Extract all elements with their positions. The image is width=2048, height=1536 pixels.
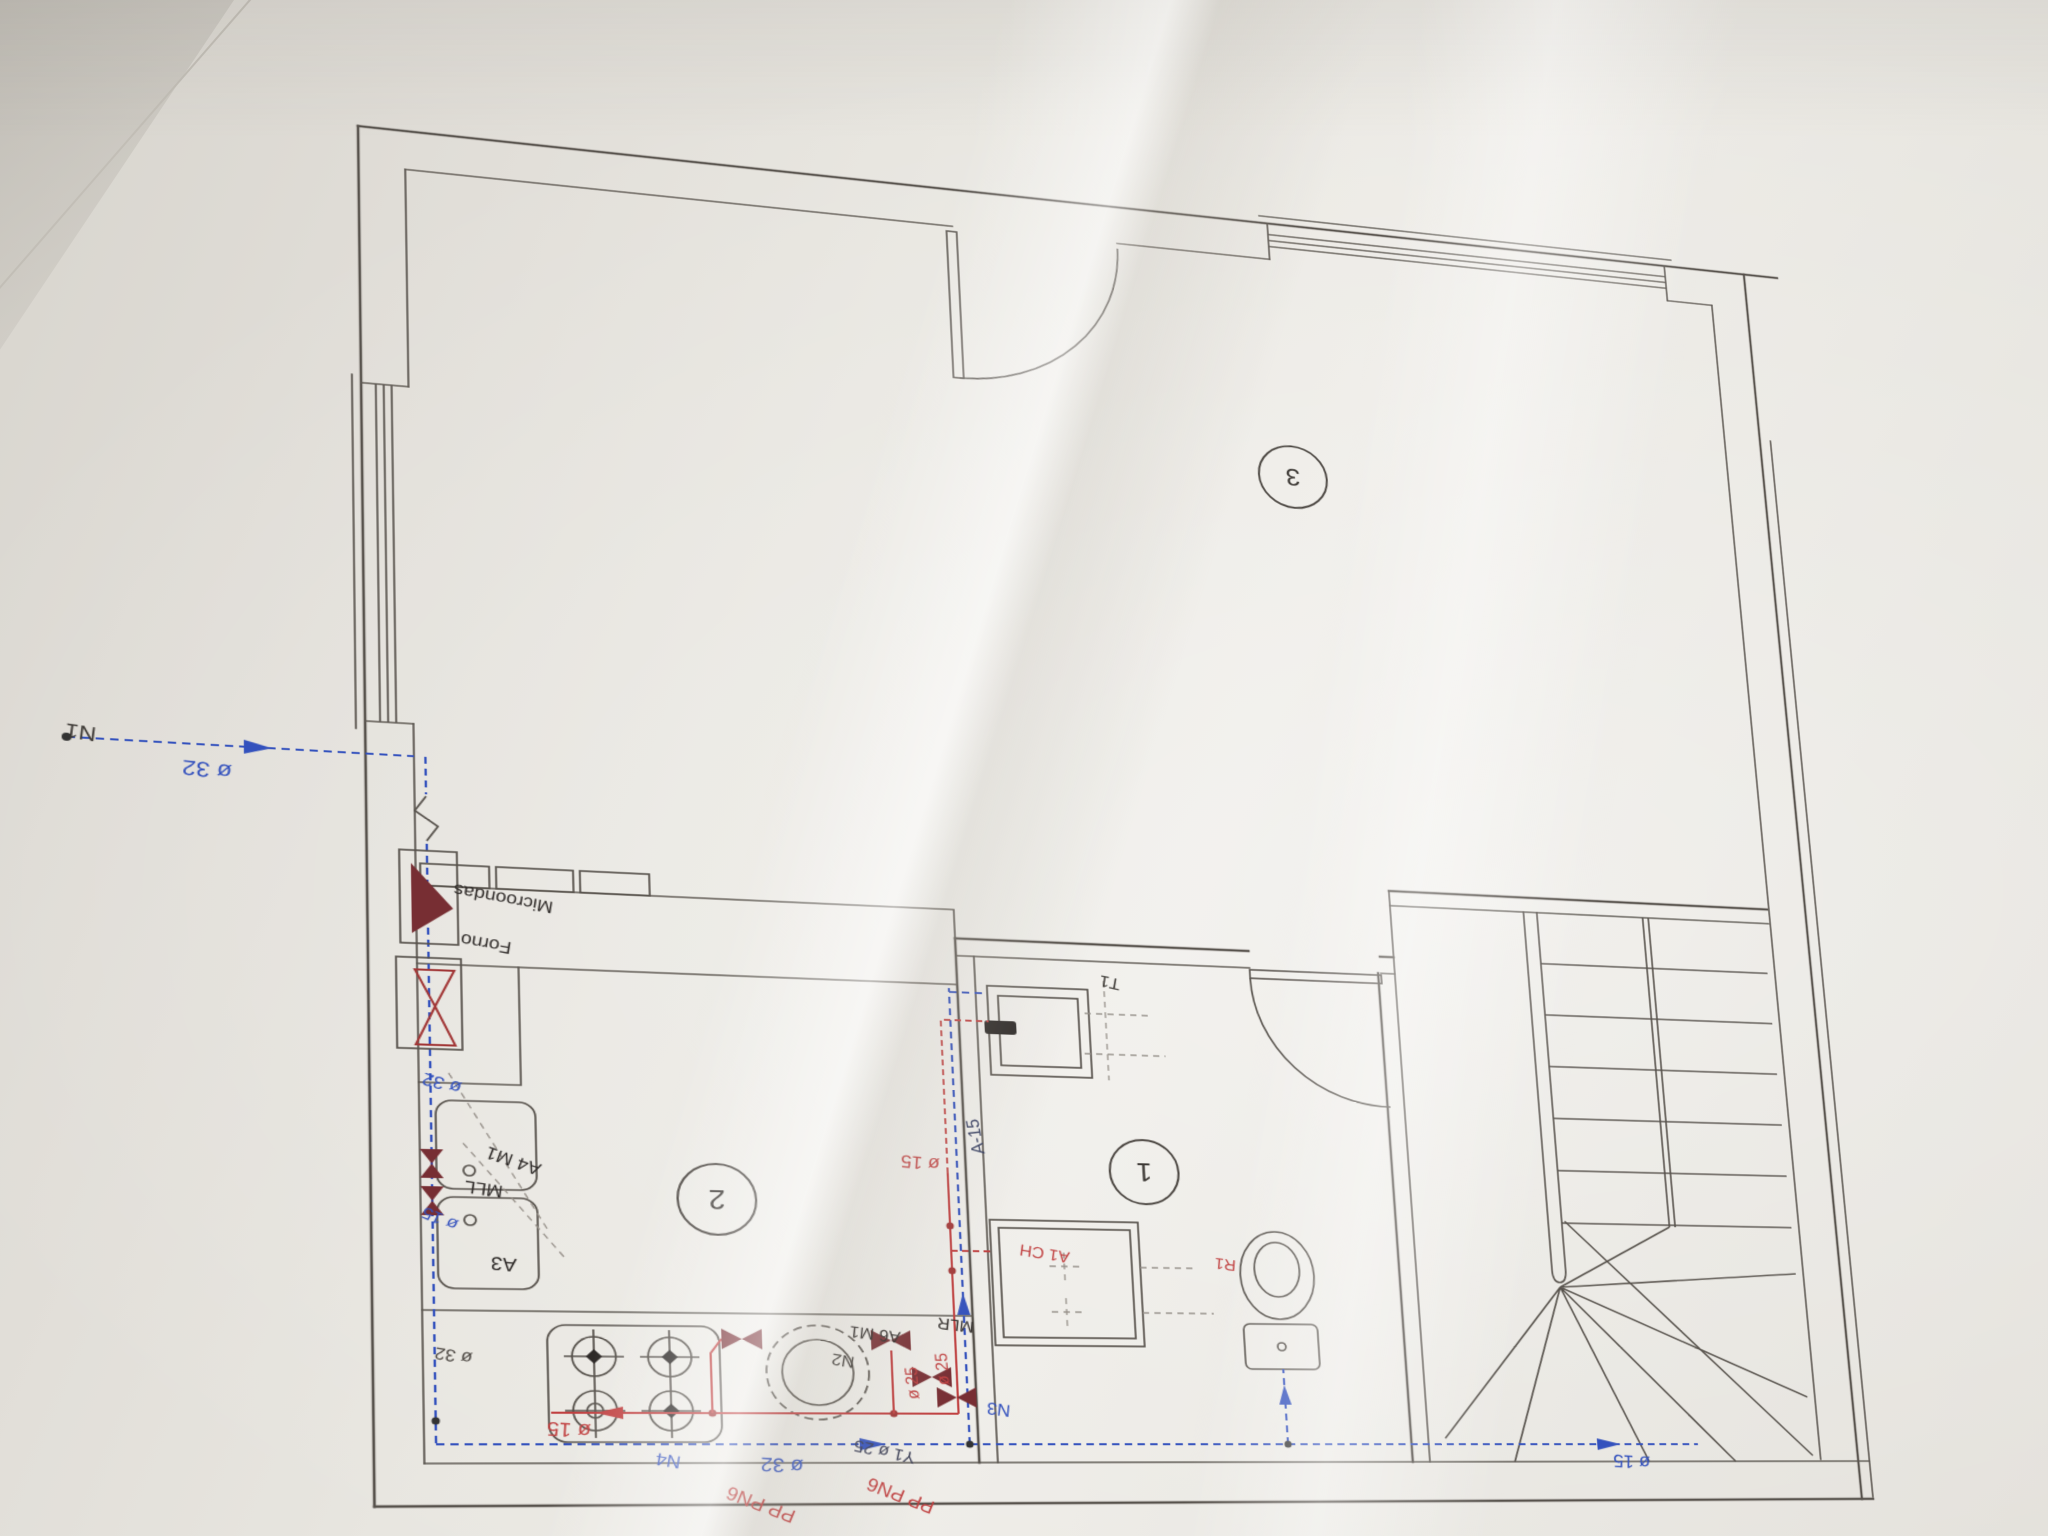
annotations: N1 ø 32 ø 32 ø 32 Microondas Forno A4 M1…	[59, 718, 1656, 1532]
floor-plan-sheet: 1 2 3 N1 ø 32 ø 32 ø 32 Microondas Forno…	[0, 52, 1920, 1536]
label-appliance: MLR	[937, 1314, 975, 1337]
label-fixture: A3	[490, 1253, 517, 1276]
outer-walls	[349, 118, 1897, 1507]
room-number-1: 1	[1136, 1158, 1153, 1187]
room-circles	[654, 390, 1381, 1246]
valve-icon	[420, 1149, 444, 1164]
label-pipe-dia: ø 32	[760, 1452, 804, 1477]
label-node-n1: N1	[64, 718, 98, 744]
label-fixture: A6 M1	[849, 1322, 901, 1347]
label-node-n4: N4	[654, 1449, 682, 1473]
flow-arrow-icon	[956, 1293, 970, 1315]
check-valve-icon	[411, 863, 454, 935]
valve-icon	[420, 1163, 444, 1178]
label-fixture: R1	[1214, 1254, 1236, 1274]
label-pipe-spec: PP PN6	[863, 1474, 937, 1519]
room-number-2: 2	[708, 1184, 726, 1214]
bathroom-door	[1250, 970, 1391, 1107]
label-pipe-dia: ø 15	[900, 1151, 940, 1175]
label-pipe-dia: ø 25	[901, 1367, 924, 1400]
label-pipe-dia: ø 15	[546, 1417, 591, 1442]
burner-icon	[639, 1330, 700, 1384]
label-pipe-dia: ø 15	[1613, 1450, 1650, 1473]
water-heater-t1	[982, 976, 1167, 1082]
label-node-n3: N3	[986, 1398, 1012, 1420]
heater-handle-icon	[984, 1020, 1016, 1035]
label-pipe-spec: PP PN6	[723, 1482, 799, 1527]
floor-plan-photo: 1 2 3 N1 ø 32 ø 32 ø 32 Microondas Forno…	[0, 0, 2048, 1536]
label-pipe-dia: ø 32	[420, 1069, 464, 1098]
label-node-n2: N2	[830, 1350, 855, 1372]
label-fixture: A1 CH	[1019, 1241, 1071, 1267]
shower-tray	[990, 1220, 1216, 1347]
label-pipe-dia: ø 32	[181, 755, 233, 785]
room-number-3: 3	[1285, 463, 1301, 490]
valve-icon	[741, 1329, 762, 1350]
label-pipe-dia: ø 25	[931, 1353, 954, 1386]
valve-icon	[721, 1329, 742, 1350]
pipe-break-icon	[415, 796, 439, 842]
valve-icon	[420, 1186, 444, 1201]
label-pipe-dia: ø 15	[418, 1203, 461, 1235]
label-appliance: Forno	[459, 930, 513, 958]
kitchen-counter	[416, 863, 973, 1316]
meter-valve-icon	[415, 969, 456, 1045]
bathroom-walls	[952, 870, 1430, 1463]
label-pipe-dia: ø 32	[433, 1343, 474, 1368]
valve-icon	[937, 1387, 958, 1407]
staircase	[1389, 891, 1819, 1462]
burner-icon	[563, 1329, 624, 1384]
flow-arrow-icon	[1597, 1438, 1621, 1450]
label-appliance: MLL	[463, 1177, 504, 1202]
wall-cabinet	[496, 867, 574, 892]
label-fixture: T1	[1098, 972, 1121, 994]
flow-arrow-icon	[1278, 1385, 1292, 1405]
wall-cabinet	[580, 871, 650, 896]
label-appliance: Microondas	[452, 880, 555, 917]
water-meter-valves	[394, 849, 465, 1216]
burner-icon	[641, 1384, 702, 1438]
entry-door	[946, 231, 1125, 393]
toilet	[1238, 1231, 1321, 1369]
floor-plan-svg: 1 2 3 N1 ø 32 ø 32 ø 32 Microondas Forno…	[0, 52, 1920, 1536]
flow-arrow-icon	[244, 740, 272, 756]
